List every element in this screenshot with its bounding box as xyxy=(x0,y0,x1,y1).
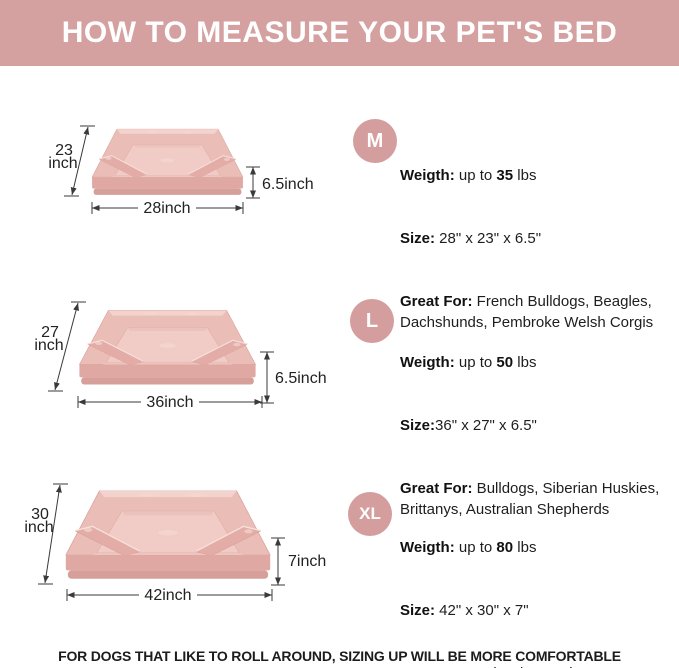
size-badge-xl: XL xyxy=(348,492,392,536)
infographic-page: HOW TO MEASURE YOUR PET'S BED 23 inch 28… xyxy=(0,0,679,668)
size-m-diagram: 23 inch 28inch 6.5inch xyxy=(40,115,360,225)
size-badge-m: M xyxy=(353,119,397,163)
depth-arrow-m: 23 inch xyxy=(48,126,95,196)
footer-note: FOR DOGS THAT LIKE TO ROLL AROUND, SIZIN… xyxy=(0,648,679,664)
height-dimension-label: 6.5inch xyxy=(275,370,327,387)
bed-illustration-l xyxy=(79,310,255,384)
depth-arrow-xl: 30 inch xyxy=(24,484,68,584)
size-info-xl: Weigth: up to 80 lbs Size: 42" x 30" x 7… xyxy=(400,495,672,668)
height-arrow-m: 6.5inch xyxy=(246,167,314,198)
height-dimension-label: 7inch xyxy=(288,553,326,570)
weight-line: Weigth: up to 50 lbs xyxy=(400,352,672,373)
bed-illustration-m xyxy=(92,129,243,195)
bed-illustration-xl xyxy=(66,491,270,579)
width-arrow-l: 36inch xyxy=(78,394,262,411)
depth-dimension-unit: inch xyxy=(48,155,77,172)
size-line: Size: 42" x 30" x 7" xyxy=(400,600,672,621)
size-badge-l: L xyxy=(350,299,394,343)
width-arrow-xl: 42inch xyxy=(67,587,272,604)
depth-arrow-l: 27 inch xyxy=(34,302,86,391)
width-arrow-m: 28inch xyxy=(92,200,243,217)
height-dimension-label: 6.5inch xyxy=(262,176,314,193)
header-banner: HOW TO MEASURE YOUR PET'S BED xyxy=(0,0,679,66)
size-line: Size:36" x 27" x 6.5" xyxy=(400,415,672,436)
weight-line: Weigth: up to 35 lbs xyxy=(400,165,672,186)
size-xl-diagram: 30 inch 42inch 7inch xyxy=(20,475,360,615)
depth-dimension-unit: inch xyxy=(24,519,53,536)
size-l-diagram: 27 inch 36inch 6.5inch xyxy=(30,295,360,420)
width-dimension-label: 28inch xyxy=(143,200,190,217)
page-title: HOW TO MEASURE YOUR PET'S BED xyxy=(62,16,618,50)
weight-line: Weigth: up to 80 lbs xyxy=(400,537,672,558)
height-arrow-l: 6.5inch xyxy=(260,352,327,403)
width-dimension-label: 42inch xyxy=(144,587,191,604)
size-line: Size: 28" x 23" x 6.5" xyxy=(400,228,672,249)
height-arrow-xl: 7inch xyxy=(271,538,326,585)
width-dimension-label: 36inch xyxy=(146,394,193,411)
depth-dimension-unit: inch xyxy=(34,337,63,354)
